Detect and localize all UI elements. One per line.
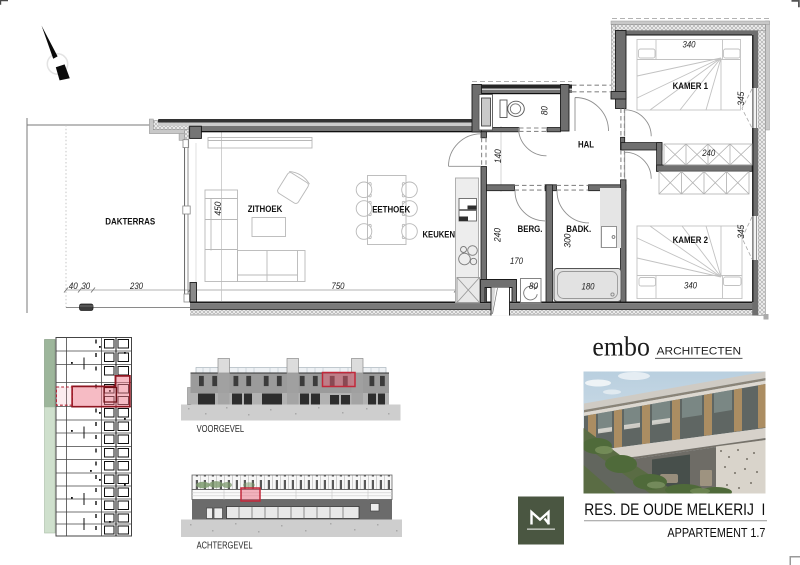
svg-text:340: 340 xyxy=(683,39,696,49)
svg-text:BADK.: BADK. xyxy=(566,224,591,234)
svg-text:VOORGEVEL: VOORGEVEL xyxy=(197,424,245,435)
svg-text:ARCHITECTEN: ARCHITECTEN xyxy=(657,345,742,357)
svg-text:KAMER 1: KAMER 1 xyxy=(673,81,708,91)
svg-text:345: 345 xyxy=(736,225,746,239)
svg-text:240: 240 xyxy=(701,148,715,158)
svg-text:ZITHOEK: ZITHOEK xyxy=(248,204,283,214)
svg-text:170: 170 xyxy=(510,256,523,266)
svg-text:RES. DE OUDE MELKERIJ I: RES. DE OUDE MELKERIJ I xyxy=(584,500,765,519)
svg-text:80: 80 xyxy=(529,281,538,291)
svg-text:HAL: HAL xyxy=(578,140,594,150)
svg-text:345: 345 xyxy=(736,92,746,106)
svg-text:300: 300 xyxy=(562,234,572,248)
svg-text:ACHTERGEVEL: ACHTERGEVEL xyxy=(197,540,253,551)
svg-text:450: 450 xyxy=(213,202,223,216)
svg-text:DAKTERRAS: DAKTERRAS xyxy=(105,217,155,227)
svg-text:340: 340 xyxy=(684,280,697,290)
svg-text:EETHOEK: EETHOEK xyxy=(372,205,410,215)
svg-text:BERG.: BERG. xyxy=(518,224,543,234)
svg-text:240: 240 xyxy=(492,228,502,243)
svg-text:40: 40 xyxy=(69,281,78,291)
svg-text:APPARTEMENT 1.7: APPARTEMENT 1.7 xyxy=(667,526,765,540)
svg-text:KEUKEN: KEUKEN xyxy=(423,229,456,239)
svg-text:30: 30 xyxy=(82,281,91,291)
svg-text:80: 80 xyxy=(540,106,550,115)
svg-text:750: 750 xyxy=(332,281,345,291)
svg-text:230: 230 xyxy=(129,281,143,291)
svg-text:140: 140 xyxy=(493,149,503,163)
svg-text:embo: embo xyxy=(592,331,650,361)
svg-text:KAMER 2: KAMER 2 xyxy=(673,235,708,245)
svg-text:180: 180 xyxy=(582,281,595,291)
